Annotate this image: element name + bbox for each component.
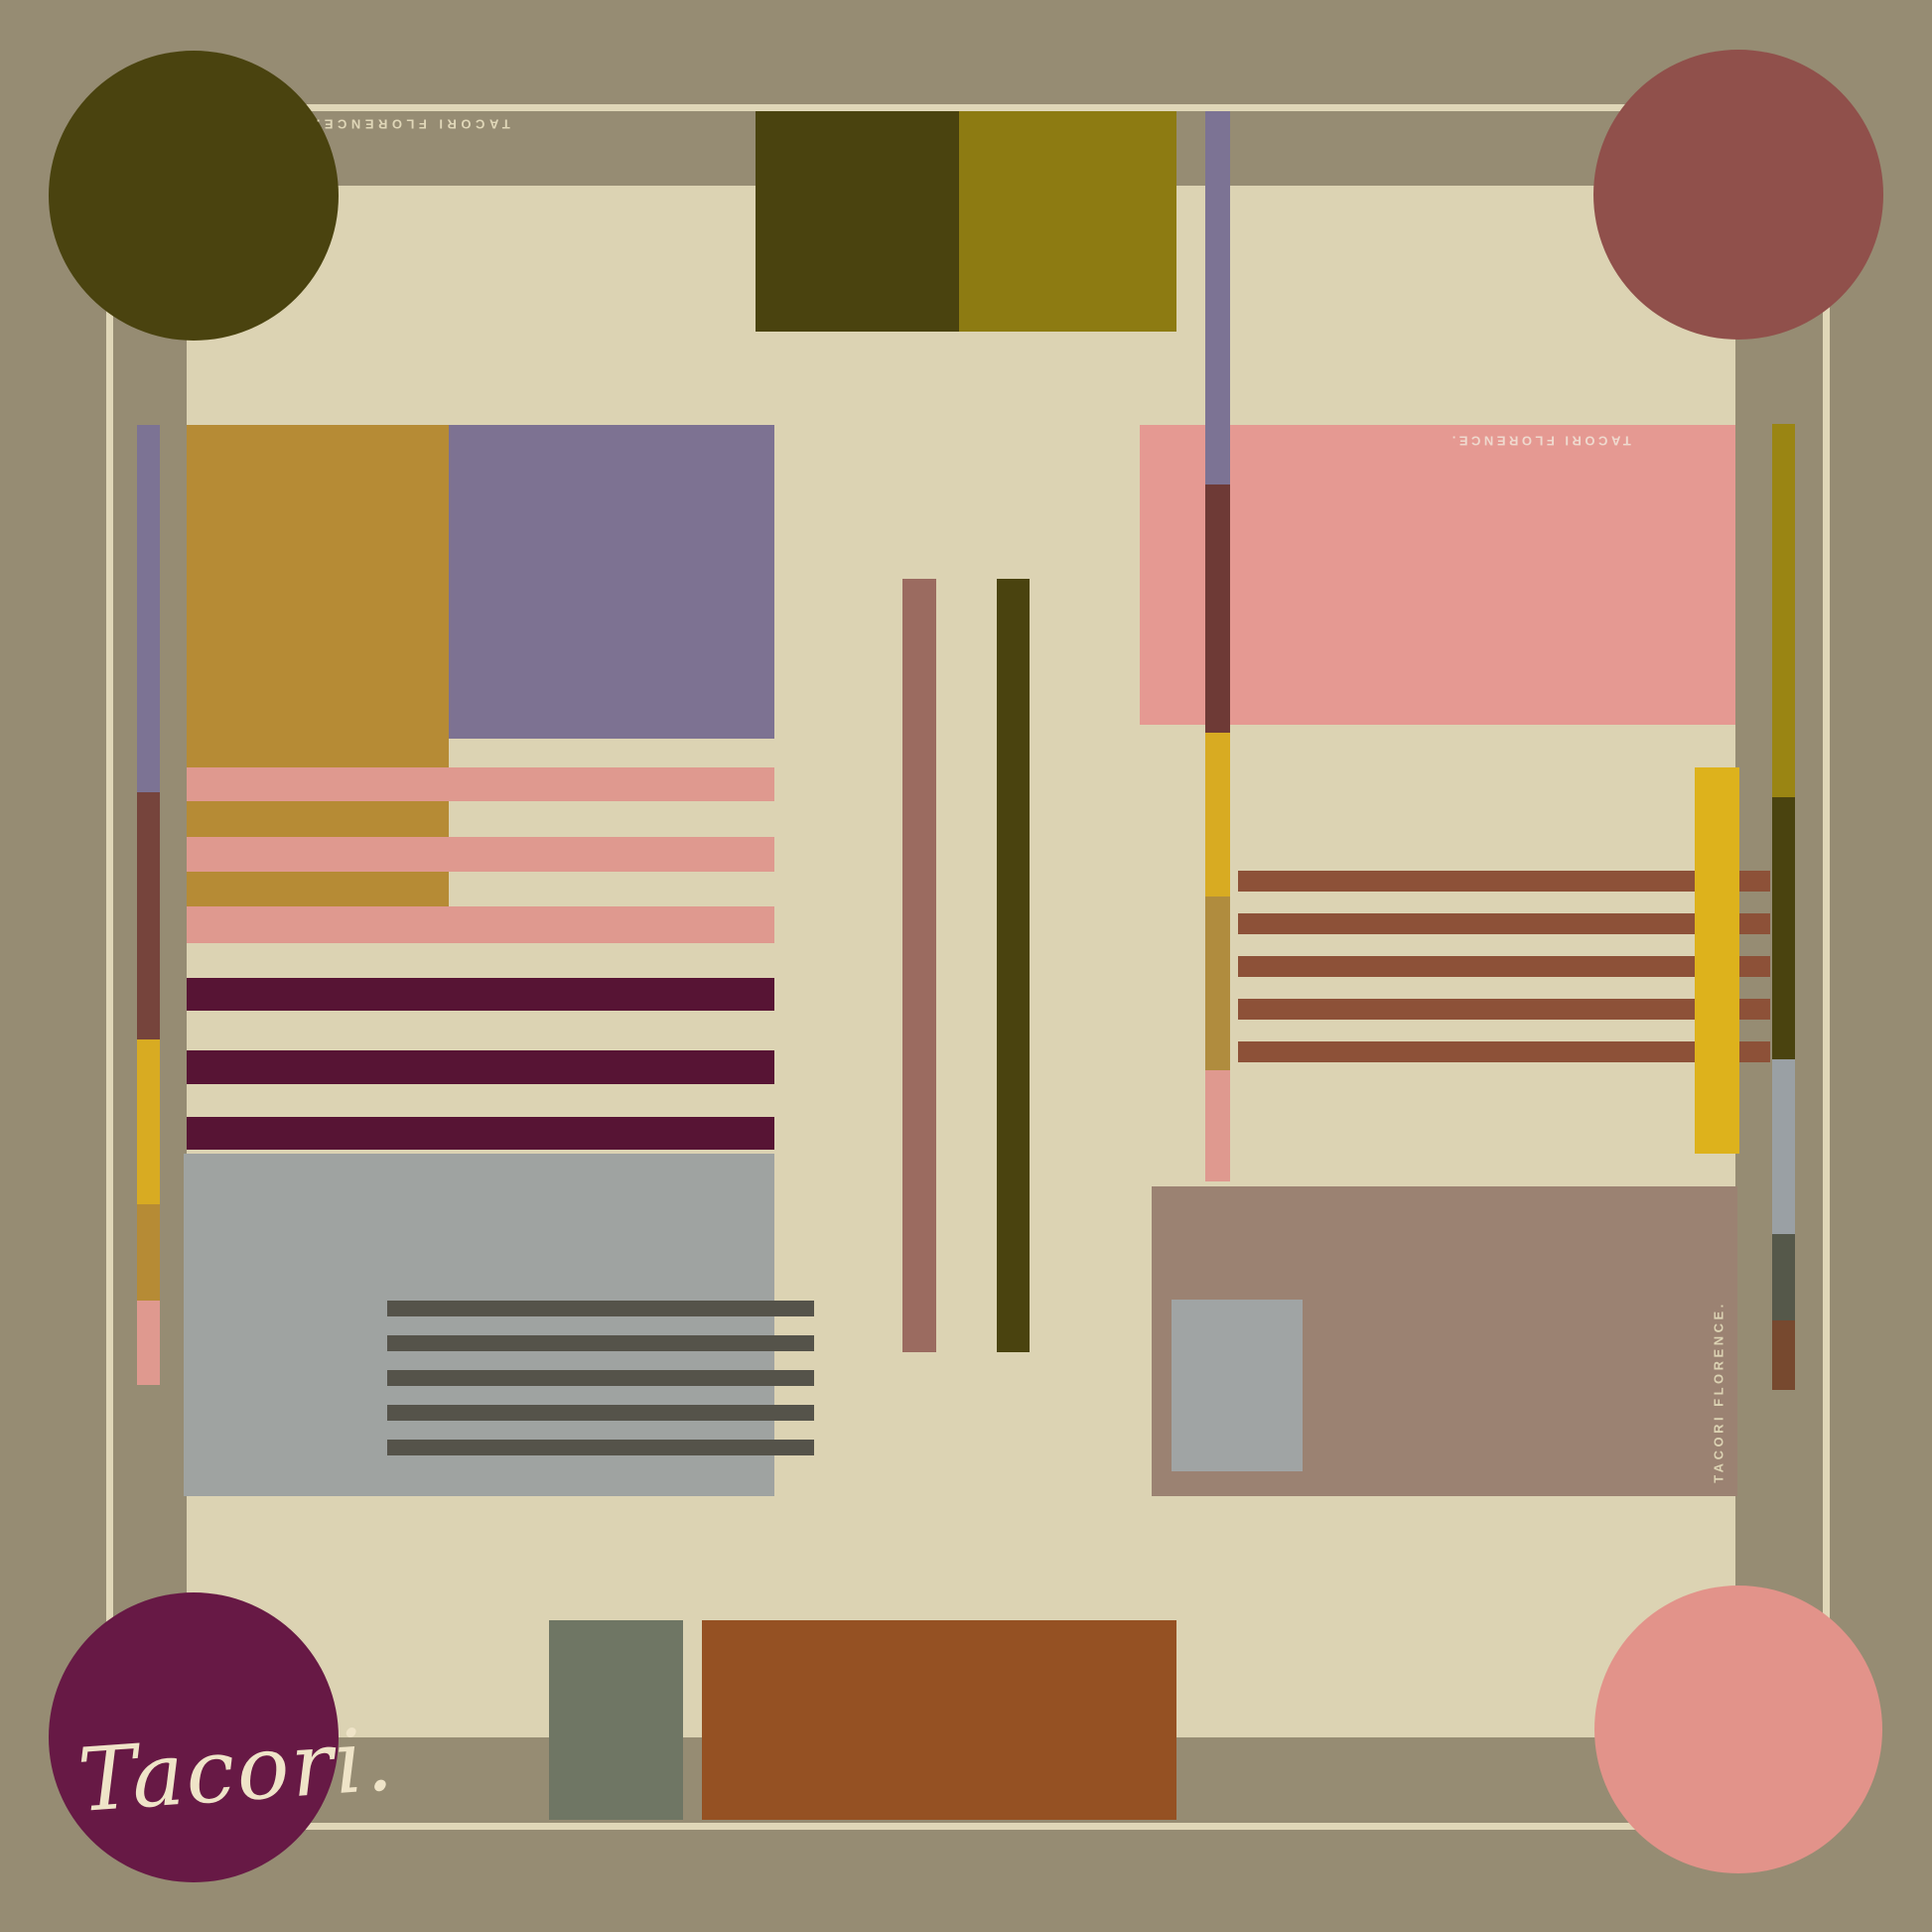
right-edge-bar-gray xyxy=(1772,1059,1795,1234)
left-edge-bar-pink xyxy=(137,1301,160,1385)
caption-pink-rect-flipped: TACORI FLORENCE. xyxy=(1449,435,1631,448)
center-bar-olive xyxy=(997,579,1030,1352)
caption-block-vertical: TACORI FLORENCE. xyxy=(1713,1301,1725,1483)
charcoal-stripe-5 xyxy=(387,1440,814,1455)
mid-bar-pink xyxy=(1205,1070,1230,1181)
frame-line-right xyxy=(1823,104,1830,1830)
frame-line-top xyxy=(106,104,1830,111)
clay-stripe-4 xyxy=(1238,999,1770,1020)
clay-stripe-1 xyxy=(1238,871,1770,892)
right-edge-bar-dark-olive xyxy=(1772,797,1795,1059)
left-edge-bar-mustard xyxy=(137,1204,160,1301)
top-rect-olive-yellow xyxy=(959,111,1176,332)
center-bar-rose xyxy=(902,579,936,1352)
left-edge-bar-maroon xyxy=(137,792,160,1039)
charcoal-stripe-1 xyxy=(387,1301,814,1316)
circle-top-left-olive xyxy=(49,51,339,341)
frame-line-bottom xyxy=(106,1823,1830,1830)
clay-stripe-3 xyxy=(1238,956,1770,977)
left-block-mustard xyxy=(187,425,449,906)
charcoal-stripe-2 xyxy=(387,1335,814,1351)
wine-stripe-3 xyxy=(187,1117,774,1150)
brand-script-signature: Tacori. xyxy=(75,1716,397,1825)
gray-square xyxy=(1172,1300,1303,1471)
mid-bar-tan xyxy=(1205,897,1230,1070)
bottom-rect-brown xyxy=(702,1620,1176,1820)
mid-bar-purple xyxy=(1205,111,1230,484)
clay-stripe-5 xyxy=(1238,1041,1770,1062)
clay-stripe-2 xyxy=(1238,913,1770,934)
right-edge-bar-olive-gold xyxy=(1772,424,1795,797)
wine-stripe-2 xyxy=(187,1050,774,1084)
circle-top-right-mauve xyxy=(1593,50,1883,340)
top-rect-dark-olive xyxy=(756,111,959,332)
charcoal-stripe-3 xyxy=(387,1370,814,1386)
mid-bar-wine xyxy=(1205,484,1230,733)
right-edge-bar-brown xyxy=(1772,1320,1795,1390)
bright-yellow-rect xyxy=(1695,767,1739,1154)
right-edge-bar-dark-gray xyxy=(1772,1234,1795,1320)
bottom-rect-sage xyxy=(549,1620,683,1820)
frame-line-left xyxy=(106,104,113,1830)
circle-bottom-right-pink xyxy=(1594,1586,1882,1873)
salmon-stripe-1 xyxy=(187,767,774,801)
wine-stripe-1 xyxy=(187,978,774,1011)
mid-bar-yellow xyxy=(1205,733,1230,897)
scarf-design: TACORI FLORENCE.TACORI FLORENCE.TACORI F… xyxy=(0,0,1932,1932)
caption-top-flipped: TACORI FLORENCE. xyxy=(312,118,510,131)
charcoal-stripe-4 xyxy=(387,1405,814,1421)
salmon-stripe-2 xyxy=(187,837,774,872)
left-edge-bar-purple xyxy=(137,425,160,792)
salmon-stripe-3 xyxy=(187,906,774,943)
left-edge-bar-yellow xyxy=(137,1039,160,1204)
left-block-purple xyxy=(449,425,774,739)
